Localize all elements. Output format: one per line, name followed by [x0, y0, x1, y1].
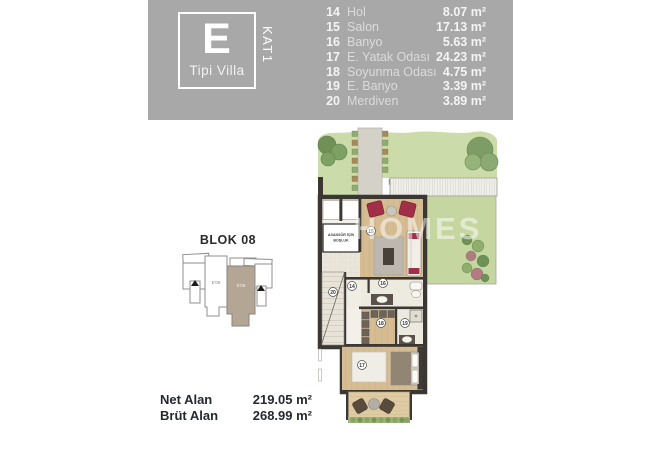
- site-villa-highlighted: E'08: [227, 258, 272, 326]
- room-row: 18 Soyunma Odası 4.75 m²: [320, 65, 486, 80]
- svg-text:19: 19: [402, 321, 408, 327]
- room-name: Hol: [347, 5, 443, 20]
- room-area: 17.13 m²: [436, 20, 486, 35]
- room-number: 19: [320, 79, 340, 94]
- site-villa-left: E'08: [183, 253, 227, 316]
- room-number: 17: [320, 50, 340, 65]
- room-area: 3.39 m²: [443, 79, 486, 94]
- area-summary: Net Alan 219.05 m² Brüt Alan 268.99 m²: [160, 391, 312, 424]
- site-unit-label-left: E'08: [212, 280, 221, 285]
- marker-hol: 14: [348, 282, 357, 291]
- garden-path: [358, 128, 382, 196]
- staircase: [322, 272, 344, 345]
- elevator-note-line2: BOŞLUK: [333, 239, 349, 243]
- room-number: 15: [320, 20, 340, 35]
- window: [319, 349, 322, 361]
- toilet-icon: [410, 282, 422, 290]
- floor-label: KAT1: [260, 26, 275, 64]
- room-number: 18: [320, 65, 340, 80]
- room-area: 5.63 m²: [443, 35, 486, 50]
- room-schedule: 14 Hol 8.07 m² 15 Salon 17.13 m² 16 Bany…: [320, 5, 486, 109]
- marker-yatak: 17: [358, 361, 367, 370]
- room-number: 20: [320, 94, 340, 109]
- room-row: 14 Hol 8.07 m²: [320, 5, 486, 20]
- sink-icon: [402, 336, 412, 342]
- room-area: 24.23 m²: [436, 50, 486, 65]
- net-area-value: 219.05 m²: [253, 392, 312, 407]
- bidet-icon: [412, 291, 421, 298]
- nightstand-icon: [418, 384, 424, 390]
- room-row: 17 E. Yatak Odası 24.23 m²: [320, 50, 486, 65]
- room-name: Salon: [347, 20, 436, 35]
- brut-area-label: Brüt Alan: [160, 408, 218, 423]
- rug: [352, 352, 386, 382]
- headboard: [419, 350, 423, 386]
- svg-text:17: 17: [359, 363, 365, 369]
- svg-text:16: 16: [380, 281, 386, 287]
- terrace-hedge: [348, 417, 410, 423]
- header-banner: E Tipi Villa KAT1 14 Hol 8.07 m² 15 Salo…: [148, 0, 513, 120]
- brut-area-row: Brüt Alan 268.99 m²: [160, 408, 312, 425]
- room-name: Banyo: [347, 35, 443, 50]
- room-area: 8.07 m²: [443, 5, 486, 20]
- net-area-label: Net Alan: [160, 392, 212, 407]
- room-name: Merdiven: [347, 94, 443, 109]
- room-row: 19 E. Banyo 3.39 m²: [320, 79, 486, 94]
- room-row: 15 Salon 17.13 m²: [320, 20, 486, 35]
- room-area: 3.89 m²: [443, 94, 486, 109]
- villa-type-badge: E Tipi Villa: [178, 12, 256, 89]
- villa-type-label: Tipi Villa: [180, 63, 254, 78]
- patio-table-icon: [369, 399, 380, 410]
- bed-blanket: [391, 352, 411, 385]
- room-row: 16 Banyo 5.63 m²: [320, 35, 486, 50]
- room-name: Soyunma Odası: [347, 65, 443, 80]
- garden-wall: [318, 177, 323, 196]
- room-name: E. Yatak Odası: [347, 50, 436, 65]
- marker-ebanyo: 19: [401, 319, 410, 328]
- svg-text:20: 20: [330, 290, 336, 296]
- pergola-band: [390, 178, 497, 196]
- site-unit-label-right: E'08: [237, 283, 246, 288]
- room-name: E. Banyo: [347, 79, 443, 94]
- svg-text:18: 18: [378, 321, 384, 327]
- floor-plan-page: { "title_block": { "type_letter": "E", "…: [0, 0, 650, 450]
- coffee-table-icon: [383, 248, 394, 265]
- watermark-text: HOMES: [354, 211, 483, 246]
- window: [319, 369, 322, 381]
- block-title: BLOK 08: [158, 233, 298, 247]
- marker-soyunma: 18: [377, 319, 386, 328]
- nightstand-icon: [418, 347, 424, 353]
- marker-merdiven: 20: [329, 288, 338, 297]
- pillow-icon: [409, 268, 420, 274]
- net-area-row: Net Alan 219.05 m²: [160, 391, 312, 408]
- room-row: 20 Merdiven 3.89 m²: [320, 94, 486, 109]
- elevator-note-line1: ASANSÖR İÇİN: [328, 232, 355, 237]
- pillow-icon: [412, 370, 418, 383]
- floor-plan-drawing: ASANSÖR İÇİN BOŞLUK: [315, 122, 505, 432]
- room-number: 16: [320, 35, 340, 50]
- marker-banyo: 16: [379, 279, 388, 288]
- terrace: [346, 392, 412, 423]
- svg-text:14: 14: [349, 284, 355, 290]
- site-plan-block: BLOK 08 E'08 E'08: [158, 233, 298, 335]
- villa-type-letter: E: [180, 16, 254, 62]
- room-area: 4.75 m²: [443, 65, 486, 80]
- brut-area-value: 268.99 m²: [253, 408, 312, 423]
- site-plan-map: E'08 E'08: [158, 250, 298, 335]
- pillow-icon: [412, 354, 418, 367]
- sink-icon: [377, 296, 388, 303]
- room-number: 14: [320, 5, 340, 20]
